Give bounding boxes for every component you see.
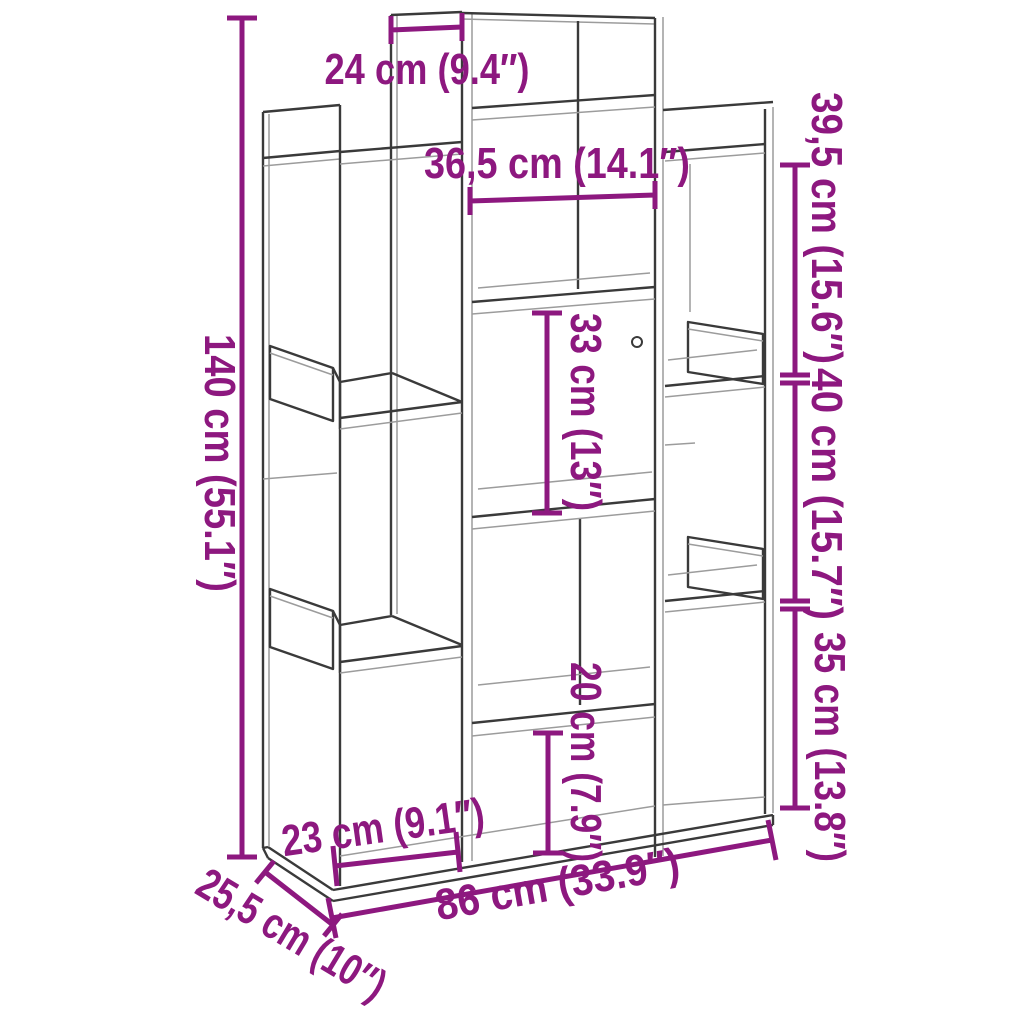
left-bracket-lower bbox=[333, 611, 462, 673]
diagram-stage: 24 cm (9.4″) 36,5 cm (14.1″) 140 cm (55.… bbox=[0, 0, 1024, 1024]
side-top-box-shelf bbox=[263, 151, 340, 158]
tower-roof bbox=[391, 12, 462, 15]
right-shelf-low-inner bbox=[665, 602, 765, 612]
dim-label-20cm: 20 cm (7.9″) bbox=[561, 662, 610, 862]
dim-label-39-5cm: 39,5 cm (15.6″) bbox=[802, 92, 851, 364]
dim-total-height: 140 cm (55.1″) bbox=[195, 18, 257, 857]
center-shelf-2-inner bbox=[472, 299, 655, 314]
right-shelf-mid-inner bbox=[665, 387, 765, 397]
left-side-panel bbox=[263, 105, 340, 848]
right-lip-mid-edge bbox=[688, 329, 763, 341]
dim-label-40cm: 40 cm (15.7″) bbox=[802, 368, 851, 620]
bookcase-dimension-diagram: 24 cm (9.4″) 36,5 cm (14.1″) 140 cm (55.… bbox=[0, 0, 1024, 1024]
dim-label-35cm: 35 cm (13.8″) bbox=[805, 632, 854, 862]
center-shelf-1-inner bbox=[472, 107, 655, 120]
right-lip-low-edge bbox=[688, 544, 763, 556]
right-shelf-mid-back bbox=[668, 350, 757, 360]
right-shelf-low-back bbox=[668, 565, 757, 575]
right-bay-shelves bbox=[665, 144, 765, 612]
center-shelf-2 bbox=[472, 287, 655, 302]
side-mid-seam bbox=[263, 473, 337, 479]
dim-line bbox=[533, 733, 563, 853]
side-top-box-shelf-inner bbox=[263, 159, 340, 166]
dim-line bbox=[391, 13, 462, 44]
dim-top-cubby-width: 24 cm (9.4″) bbox=[325, 13, 530, 94]
center-roof-front bbox=[462, 19, 655, 24]
dim-inner-width: 36,5 cm (14.1″) bbox=[424, 139, 690, 215]
dim-center-lower: 20 cm (7.9″) bbox=[533, 662, 610, 862]
dim-bottom-left-width: 23 cm (9.1″) bbox=[279, 789, 488, 886]
cam-hole bbox=[632, 337, 642, 347]
dim-label-36-5cm: 36,5 cm (14.1″) bbox=[424, 139, 690, 188]
right-small-seam bbox=[665, 443, 695, 445]
center-shelf-2-back bbox=[478, 273, 650, 288]
side-lip-upper bbox=[270, 346, 333, 421]
dim-right-low: 35 cm (13.8″) bbox=[780, 609, 854, 862]
right-roof bbox=[663, 102, 773, 110]
dim-depth: 25,5 cm (10″) bbox=[188, 859, 395, 1010]
side-lip-lower bbox=[270, 589, 333, 669]
center-shelf-1 bbox=[472, 95, 655, 108]
dim-right-mid: 40 cm (15.7″) bbox=[780, 368, 851, 620]
dim-label-24cm: 24 cm (9.4″) bbox=[325, 45, 530, 94]
dim-right-top: 39,5 cm (15.6″) bbox=[780, 92, 851, 375]
center-roof bbox=[462, 13, 655, 18]
dim-label-33cm: 33 cm (13″) bbox=[561, 313, 610, 511]
dim-label-25-5cm: 25,5 cm (10″) bbox=[188, 859, 395, 1010]
dim-label-140cm: 140 cm (55.1″) bbox=[195, 334, 244, 592]
floor-line-right bbox=[663, 797, 765, 805]
